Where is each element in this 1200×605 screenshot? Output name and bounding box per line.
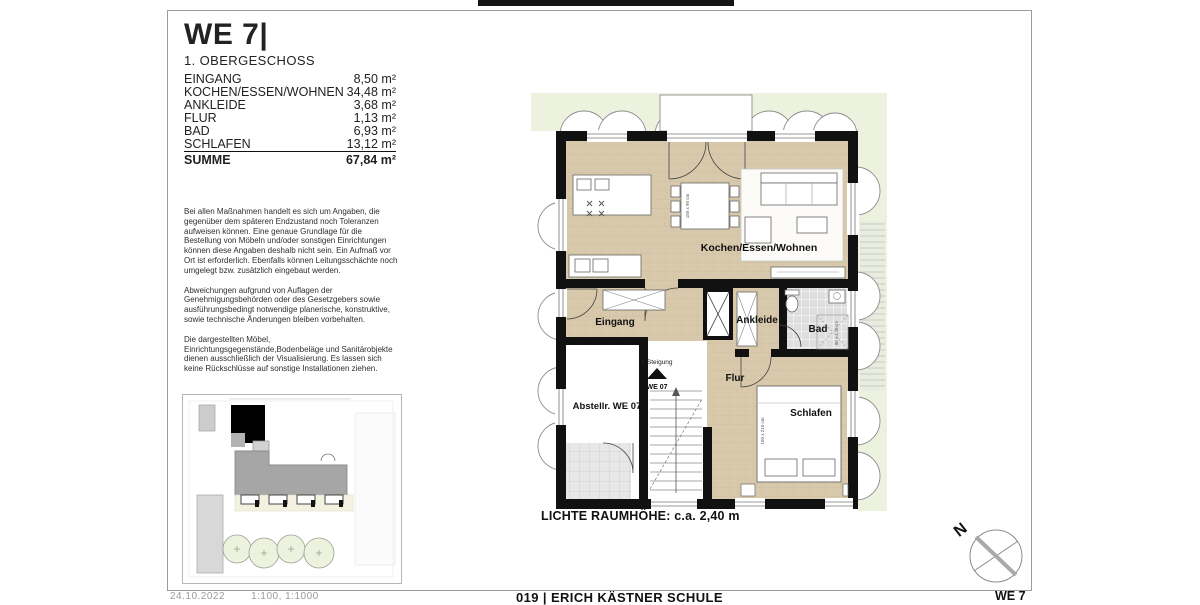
table-row: KOCHEN/ESSEN/WOHNEN 34,48 m²: [184, 86, 396, 99]
disclaimer-paragraph: Abweichungen aufgrund von Auflagen der G…: [184, 286, 398, 325]
room-label: BAD: [184, 125, 210, 138]
room-label: SCHLAFEN: [184, 138, 251, 151]
windows-top: [587, 130, 815, 142]
room-label-bath: Bad: [809, 324, 828, 335]
site-plan-drawing: [183, 395, 401, 583]
table-row: SCHLAFEN 13,12 m²: [184, 138, 396, 153]
room-label: KOCHEN/ESSEN/WOHNEN: [184, 86, 344, 99]
ceiling-height-note: LICHTE RAUMHÖHE: c.a. 2,40 m: [541, 509, 740, 523]
table-row: EINGANG 8,50 m²: [184, 73, 396, 86]
disclaimer-text: Bei allen Maßnahmen handelt es sich um A…: [184, 207, 398, 384]
room-area: 13,12 m²: [347, 138, 396, 151]
bed-dimension: 160 x 210 cm: [760, 417, 765, 444]
room-area-table: EINGANG 8,50 m² KOCHEN/ESSEN/WOHNEN 34,4…: [184, 73, 396, 167]
room-area: 1,13 m²: [354, 112, 396, 125]
footer-scale-info: 24.10.20221:100, 1:1000: [170, 591, 345, 602]
floor-plan-drawing: 150 x 90 cm: [529, 91, 889, 516]
footer-scale: 1:100, 1:1000: [251, 591, 319, 602]
room-label: EINGANG: [184, 73, 242, 86]
table-row: FLUR 1,13 m²: [184, 112, 396, 125]
page-title: WE 7|: [184, 19, 315, 51]
dining-set: [671, 183, 739, 229]
bed: [741, 386, 848, 496]
site-plan-thumbnail: [182, 394, 402, 584]
room-label-dressing: Ankleide: [736, 315, 778, 326]
footer-project-title: 019 | ERICH KÄSTNER SCHULE: [516, 590, 723, 605]
compass-rose: N: [946, 513, 1031, 588]
room-label-sleep: Schlafen: [790, 408, 832, 419]
room-label: FLUR: [184, 112, 217, 125]
table-total-row: SUMME 67,84 m²: [184, 152, 396, 167]
windows-left: [555, 199, 567, 425]
table-row: BAD 6,93 m²: [184, 125, 396, 138]
shower-dimension: 90 x 1,20 cm: [834, 321, 839, 345]
room-label-kitchen: Kochen/Essen/Wohnen: [701, 242, 818, 254]
clipped-header-bar: [478, 0, 734, 6]
room-area: 8,50 m²: [354, 73, 396, 86]
total-area: 67,84 m²: [346, 154, 396, 167]
page-subtitle: 1. OBERGESCHOSS: [184, 53, 315, 68]
footer-unit-label: WE 7: [995, 589, 1026, 603]
stair-note: 1 Steigung: [641, 359, 672, 366]
canopy-outline: [660, 95, 752, 131]
shaft: [703, 288, 733, 340]
room-area: 6,93 m²: [354, 125, 396, 138]
disclaimer-paragraph: Die dargestellten Möbel, Einrichtungsgeg…: [184, 335, 398, 374]
room-area: 3,68 m²: [354, 99, 396, 112]
room-label-hall: Flur: [726, 373, 745, 384]
table-row: ANKLEIDE 3,68 m²: [184, 99, 396, 112]
disclaimer-paragraph: Bei allen Maßnahmen handelt es sich um A…: [184, 207, 398, 276]
windows-right: [847, 183, 859, 437]
north-label: N: [951, 520, 971, 541]
terrace-tiles: [565, 443, 631, 501]
sheet-header: WE 7| 1. OBERGESCHOSS: [184, 19, 315, 68]
room-label: ANKLEIDE: [184, 99, 246, 112]
total-label: SUMME: [184, 154, 231, 167]
dining-table-dimension: 150 x 90 cm: [685, 193, 690, 218]
room-label-entry: Eingang: [595, 317, 634, 328]
room-label-storage: Abstellr. WE 07: [573, 401, 642, 412]
footer-date: 24.10.2022: [170, 591, 225, 602]
entry-wardrobe: [603, 290, 665, 310]
plan-sheet: WE 7| 1. OBERGESCHOSS EINGANG 8,50 m² KO…: [167, 10, 1032, 591]
room-area: 34,48 m²: [347, 86, 396, 99]
stair-unit-label: WE 07: [646, 384, 667, 391]
